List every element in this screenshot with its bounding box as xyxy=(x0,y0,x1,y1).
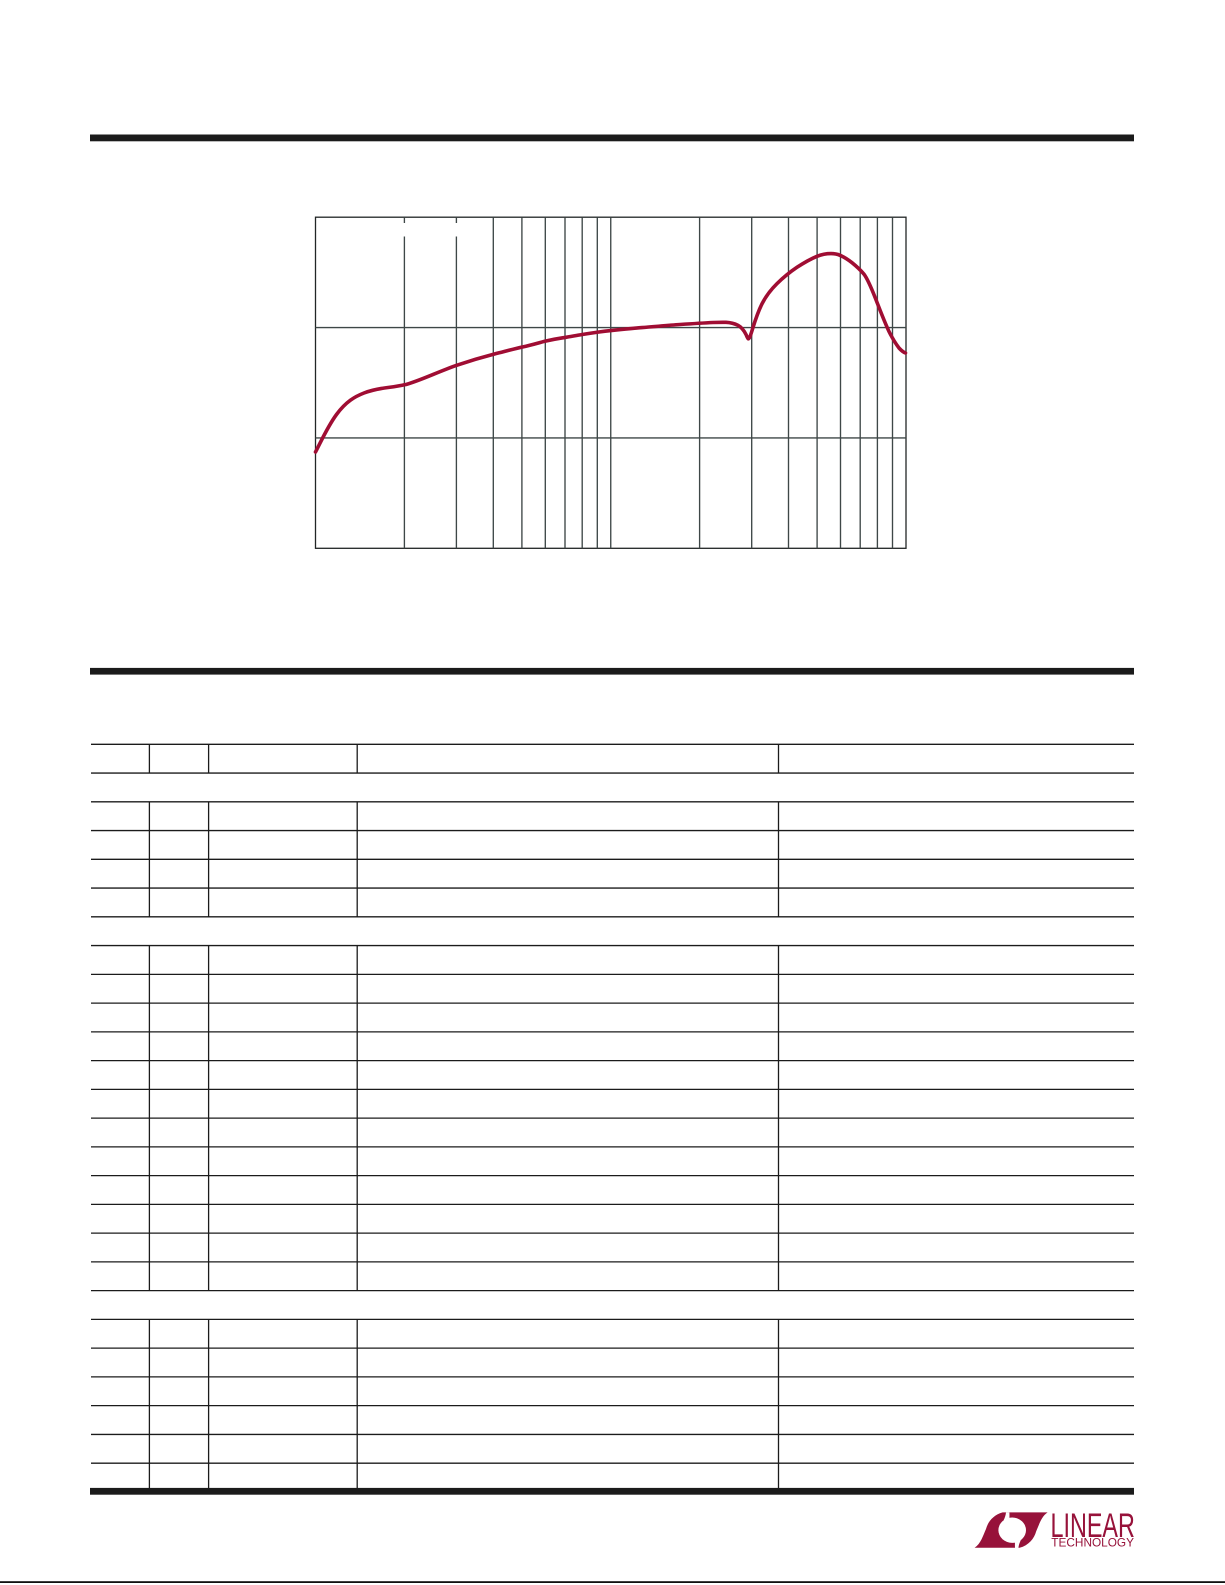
svg-text:TECHNOLOGY: TECHNOLOGY xyxy=(1051,1536,1134,1550)
